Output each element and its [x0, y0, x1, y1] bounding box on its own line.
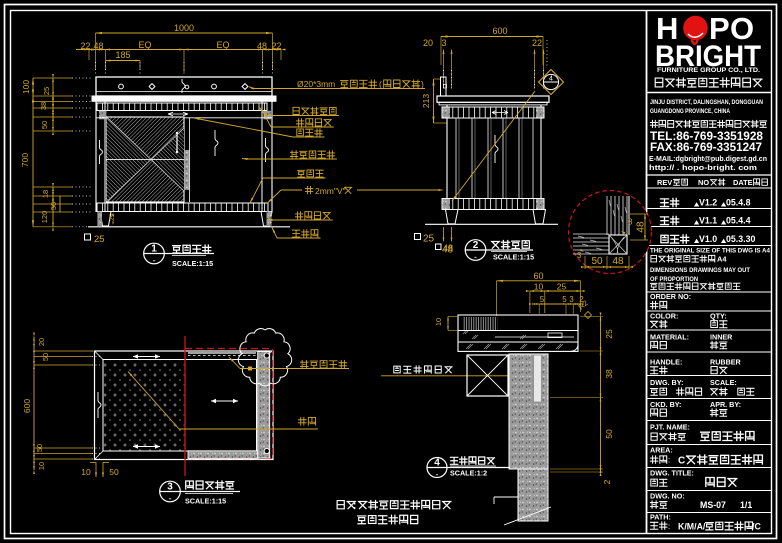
svg-text:38: 38	[604, 369, 614, 379]
svg-text:4: 4	[549, 76, 553, 83]
svg-text:-: -	[153, 256, 156, 266]
svg-text:DWG. BY:: DWG. BY:	[650, 378, 683, 387]
svg-text:3: 3	[628, 218, 633, 227]
svg-text:25: 25	[423, 234, 435, 245]
svg-text:-: -	[169, 494, 172, 504]
svg-text:SCALE:: SCALE:	[710, 378, 737, 387]
svg-text::: :	[668, 456, 670, 465]
svg-text:3: 3	[569, 295, 574, 304]
svg-text:SCALE:1:15: SCALE:1:15	[172, 259, 213, 268]
svg-text:20: 20	[423, 38, 433, 48]
svg-text:213: 213	[421, 94, 431, 108]
svg-text:2: 2	[473, 240, 479, 251]
svg-text:600: 600	[22, 399, 32, 413]
svg-text:RUBBER: RUBBER	[710, 358, 742, 367]
svg-text:05.4.4: 05.4.4	[726, 216, 751, 226]
svg-text:-: -	[436, 470, 439, 480]
svg-text:4: 4	[434, 458, 440, 469]
svg-text:QTY:: QTY:	[710, 312, 727, 321]
svg-text:22: 22	[532, 38, 542, 48]
svg-text:10: 10	[81, 467, 91, 477]
svg-text:THE ORIGINAL SIZE OF THIS DWG: THE ORIGINAL SIZE OF THIS DWG IS A4	[650, 248, 771, 255]
svg-text:1: 1	[151, 244, 157, 255]
svg-text:REV: REV	[657, 178, 672, 187]
svg-text:05.3.30: 05.3.30	[726, 234, 755, 244]
svg-text:PJT. NAME:: PJT. NAME:	[650, 423, 690, 432]
svg-text:50: 50	[109, 467, 119, 477]
svg-text:NO: NO	[698, 178, 709, 187]
svg-text:10: 10	[37, 462, 46, 470]
svg-text:COLOR:: COLOR:	[650, 312, 678, 321]
svg-text:600: 600	[492, 26, 507, 36]
svg-text:25: 25	[604, 329, 614, 339]
svg-text:(: (	[379, 79, 382, 89]
svg-text:MS-07: MS-07	[700, 500, 726, 510]
svg-text:3: 3	[577, 251, 582, 260]
svg-text:APR. BY:: APR. BY:	[710, 400, 741, 409]
svg-text:5: 5	[562, 295, 567, 304]
svg-text:PATH:: PATH:	[650, 513, 671, 522]
svg-text:48: 48	[93, 41, 103, 51]
svg-text:E-MAIL:dgbright@pub.digest.gd.: E-MAIL:dgbright@pub.digest.gd.cn	[649, 154, 767, 163]
svg-text:48: 48	[612, 256, 624, 267]
svg-text:20: 20	[37, 338, 46, 346]
svg-text:25: 25	[42, 87, 51, 95]
svg-text:38: 38	[39, 102, 48, 110]
svg-text:SCALE:1:15: SCALE:1:15	[185, 497, 226, 506]
svg-text:EQ: EQ	[138, 40, 151, 50]
svg-text:DWG. TITLE:: DWG. TITLE:	[650, 469, 694, 478]
svg-text:CKD. BY:: CKD. BY:	[650, 400, 681, 409]
svg-text:100: 100	[21, 80, 31, 94]
svg-text:FAX:86-769-3351247: FAX:86-769-3351247	[650, 140, 762, 154]
svg-text:5: 5	[540, 295, 545, 304]
svg-text:1000: 1000	[174, 23, 194, 33]
svg-text:DIMENSIONS DRAWINGS MAY OUT: DIMENSIONS DRAWINGS MAY OUT	[650, 267, 750, 274]
svg-text:48: 48	[636, 221, 647, 233]
svg-text:10: 10	[534, 282, 544, 292]
svg-text:V1.1: V1.1	[699, 216, 717, 226]
svg-text:OF PROPORTION: OF PROPORTION	[650, 276, 698, 283]
svg-text:700: 700	[20, 153, 30, 167]
svg-text:V1.0: V1.0	[699, 234, 717, 244]
svg-text:48: 48	[257, 41, 267, 51]
svg-text:60: 60	[533, 271, 543, 281]
svg-text:INNER: INNER	[710, 333, 733, 342]
svg-text:MATERIAL:: MATERIAL:	[650, 333, 689, 342]
svg-text:25: 25	[557, 282, 567, 292]
svg-text:Ø20*3mm: Ø20*3mm	[297, 79, 335, 89]
svg-text:SCALE:1:15: SCALE:1:15	[493, 253, 534, 262]
svg-text:K/M/A/: K/M/A/	[678, 522, 706, 532]
svg-text:50: 50	[591, 256, 603, 267]
svg-text:ORDER NO:: ORDER NO:	[650, 292, 691, 301]
svg-text:48: 48	[442, 245, 454, 256]
svg-text:JINJU DISTRICT, DALINGSHAN, DO: JINJU DISTRICT, DALINGSHAN, DONGGUAN	[650, 100, 763, 106]
svg-text:/C: /C	[752, 522, 761, 532]
svg-text:185: 185	[115, 50, 130, 60]
svg-text:HANDLE:: HANDLE:	[650, 358, 682, 367]
svg-text::: :	[353, 501, 356, 512]
svg-text:18: 18	[41, 190, 50, 198]
svg-text:3: 3	[167, 482, 173, 493]
svg-text:AREA:: AREA:	[650, 446, 673, 455]
svg-text:2: 2	[602, 479, 612, 484]
svg-text:DATE: DATE	[733, 178, 753, 187]
svg-text:25: 25	[94, 234, 105, 245]
svg-text:C: C	[678, 456, 685, 467]
svg-text:22: 22	[271, 41, 281, 51]
svg-text:50: 50	[49, 202, 58, 210]
svg-text::: :	[668, 522, 670, 531]
svg-text:): )	[421, 79, 424, 89]
svg-text:10: 10	[434, 318, 443, 326]
svg-text:A4: A4	[717, 255, 727, 264]
svg-text:50: 50	[40, 121, 49, 129]
svg-text:2mm"V": 2mm"V"	[315, 186, 346, 196]
svg-text:50: 50	[41, 353, 50, 361]
svg-text:http:// . hopo-bright. com: http:// . hopo-bright. com	[649, 163, 757, 172]
svg-text:50: 50	[604, 429, 614, 439]
svg-text:FURNITURE GROUP CO., LTD.: FURNITURE GROUP CO., LTD.	[657, 67, 760, 74]
svg-text:EQ: EQ	[216, 40, 229, 50]
svg-text:SCALE:1:2: SCALE:1:2	[450, 469, 487, 478]
svg-text:1/1: 1/1	[740, 500, 752, 510]
svg-text:V1.2: V1.2	[699, 198, 717, 208]
svg-text:DWG. NO:: DWG. NO:	[650, 492, 685, 501]
svg-text:25: 25	[109, 213, 116, 221]
svg-text:3: 3	[441, 38, 446, 48]
svg-text:05.4.8: 05.4.8	[726, 198, 751, 208]
svg-text:GUANGDONG PROVINCE, CHINA: GUANGDONG PROVINCE, CHINA	[650, 109, 731, 115]
svg-text:-: -	[474, 252, 477, 262]
svg-text:120: 120	[40, 211, 49, 224]
